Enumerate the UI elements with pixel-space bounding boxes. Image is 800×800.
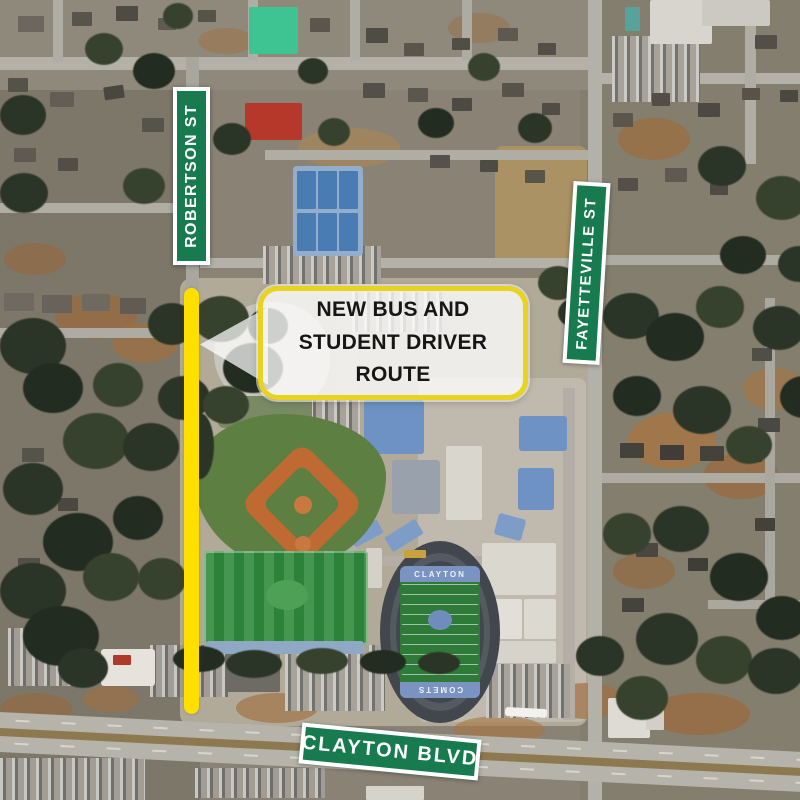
house	[620, 443, 644, 458]
house	[652, 93, 670, 106]
house	[72, 12, 92, 26]
house	[82, 294, 110, 311]
house	[430, 155, 450, 168]
house	[618, 178, 638, 191]
tree	[123, 168, 165, 204]
tree	[23, 363, 83, 413]
court	[339, 213, 358, 251]
house	[452, 38, 470, 50]
field	[295, 536, 311, 552]
house	[498, 28, 518, 41]
tree	[83, 553, 139, 601]
house	[755, 518, 775, 531]
road	[200, 258, 592, 268]
building	[366, 548, 382, 588]
tree	[318, 118, 350, 146]
tree	[748, 648, 800, 694]
house	[480, 160, 498, 172]
building	[392, 460, 440, 514]
tree	[203, 386, 249, 424]
house	[4, 293, 34, 311]
building	[245, 103, 302, 140]
building	[702, 0, 770, 26]
house	[742, 88, 760, 100]
tree	[653, 506, 709, 552]
tree	[163, 3, 193, 29]
house	[18, 16, 44, 32]
court	[318, 213, 337, 251]
tree	[710, 553, 768, 601]
lot	[0, 758, 145, 800]
road	[462, 0, 472, 60]
tree	[0, 173, 48, 213]
tree	[298, 58, 328, 84]
tree	[756, 176, 800, 220]
house	[310, 18, 330, 32]
building	[625, 7, 640, 31]
field	[294, 496, 312, 514]
house	[22, 448, 44, 462]
court	[339, 171, 358, 209]
lot	[195, 768, 325, 798]
street-sign-clayton-blvd-label: CLAYTON BLVD	[301, 732, 479, 772]
house	[404, 43, 424, 56]
aerial-photo-scenery	[0, 0, 800, 800]
tree	[93, 363, 143, 407]
callout-box: NEW BUS AND STUDENT DRIVER ROUTE	[258, 286, 528, 400]
tree	[616, 676, 668, 720]
tree	[138, 558, 186, 600]
tree	[646, 313, 704, 361]
tree	[468, 53, 500, 81]
tree	[296, 648, 348, 674]
scoreboard	[404, 550, 426, 558]
street-sign-fayetteville-label: FAYETTEVILLE ST	[573, 196, 599, 350]
house	[50, 92, 74, 107]
building	[518, 468, 554, 510]
road	[350, 0, 360, 60]
house	[698, 103, 720, 117]
callout-line2: STUDENT DRIVER ROUTE	[263, 327, 523, 392]
tree	[636, 613, 698, 665]
building	[519, 416, 567, 451]
tree	[720, 236, 766, 274]
street-sign-robertson: ROBERTSON ST	[173, 87, 210, 265]
building	[113, 655, 131, 665]
tree	[603, 513, 651, 555]
tree	[696, 286, 744, 328]
tree	[0, 95, 46, 135]
tree	[576, 636, 624, 676]
court	[318, 171, 337, 209]
tree	[173, 646, 225, 672]
house	[116, 6, 138, 21]
dirt	[83, 686, 139, 712]
house	[142, 118, 164, 132]
house	[14, 148, 36, 162]
house	[622, 598, 644, 612]
tree	[360, 650, 406, 674]
house	[58, 158, 78, 171]
road	[53, 0, 63, 62]
endzone-label-away: COMETS	[400, 685, 480, 694]
tree	[698, 146, 746, 186]
tree	[756, 596, 800, 640]
aerial-map: CLAYTON COMETS NEW BUS AND STUDENT DRIVE…	[0, 0, 800, 800]
house	[665, 168, 687, 182]
route-highlight-line	[184, 288, 199, 714]
house	[688, 558, 708, 571]
tree	[123, 423, 179, 471]
house	[700, 446, 724, 461]
house	[542, 103, 560, 115]
court	[297, 171, 316, 209]
court	[297, 213, 316, 251]
house	[752, 348, 772, 361]
house	[42, 295, 72, 313]
tree	[613, 376, 661, 416]
field	[266, 580, 308, 610]
road	[588, 0, 602, 800]
tree	[418, 108, 454, 138]
tree	[418, 652, 460, 674]
building	[249, 7, 298, 54]
house	[660, 445, 684, 460]
house	[525, 170, 545, 183]
tree	[58, 648, 108, 688]
house	[8, 78, 28, 92]
house	[198, 10, 216, 22]
tree	[85, 33, 123, 65]
house	[613, 113, 633, 127]
road	[592, 255, 800, 265]
building	[524, 599, 556, 639]
tree	[696, 636, 752, 684]
tree	[3, 463, 63, 515]
house	[538, 43, 556, 55]
building	[366, 786, 424, 800]
field	[428, 610, 452, 630]
house	[408, 88, 428, 102]
dirt	[198, 28, 254, 54]
house	[363, 83, 385, 98]
house	[502, 83, 524, 97]
tree	[673, 386, 731, 434]
house	[780, 90, 798, 102]
house	[755, 35, 777, 49]
house	[452, 98, 472, 111]
tree	[113, 496, 163, 540]
tree	[518, 113, 552, 143]
tree	[133, 53, 175, 89]
building	[446, 446, 482, 520]
building	[482, 543, 556, 595]
endzone-label-home: CLAYTON	[400, 570, 480, 579]
street-sign-robertson-label: ROBERTSON ST	[183, 104, 201, 248]
tree	[213, 123, 251, 155]
dirt	[613, 553, 675, 589]
dirt	[4, 243, 66, 275]
tree	[63, 413, 129, 469]
house	[58, 498, 78, 511]
tree	[726, 426, 772, 464]
callout-line1: NEW BUS AND	[316, 294, 469, 327]
house	[366, 28, 388, 43]
house	[103, 85, 125, 101]
tree	[753, 306, 800, 350]
house	[120, 298, 146, 314]
tree	[226, 650, 282, 678]
